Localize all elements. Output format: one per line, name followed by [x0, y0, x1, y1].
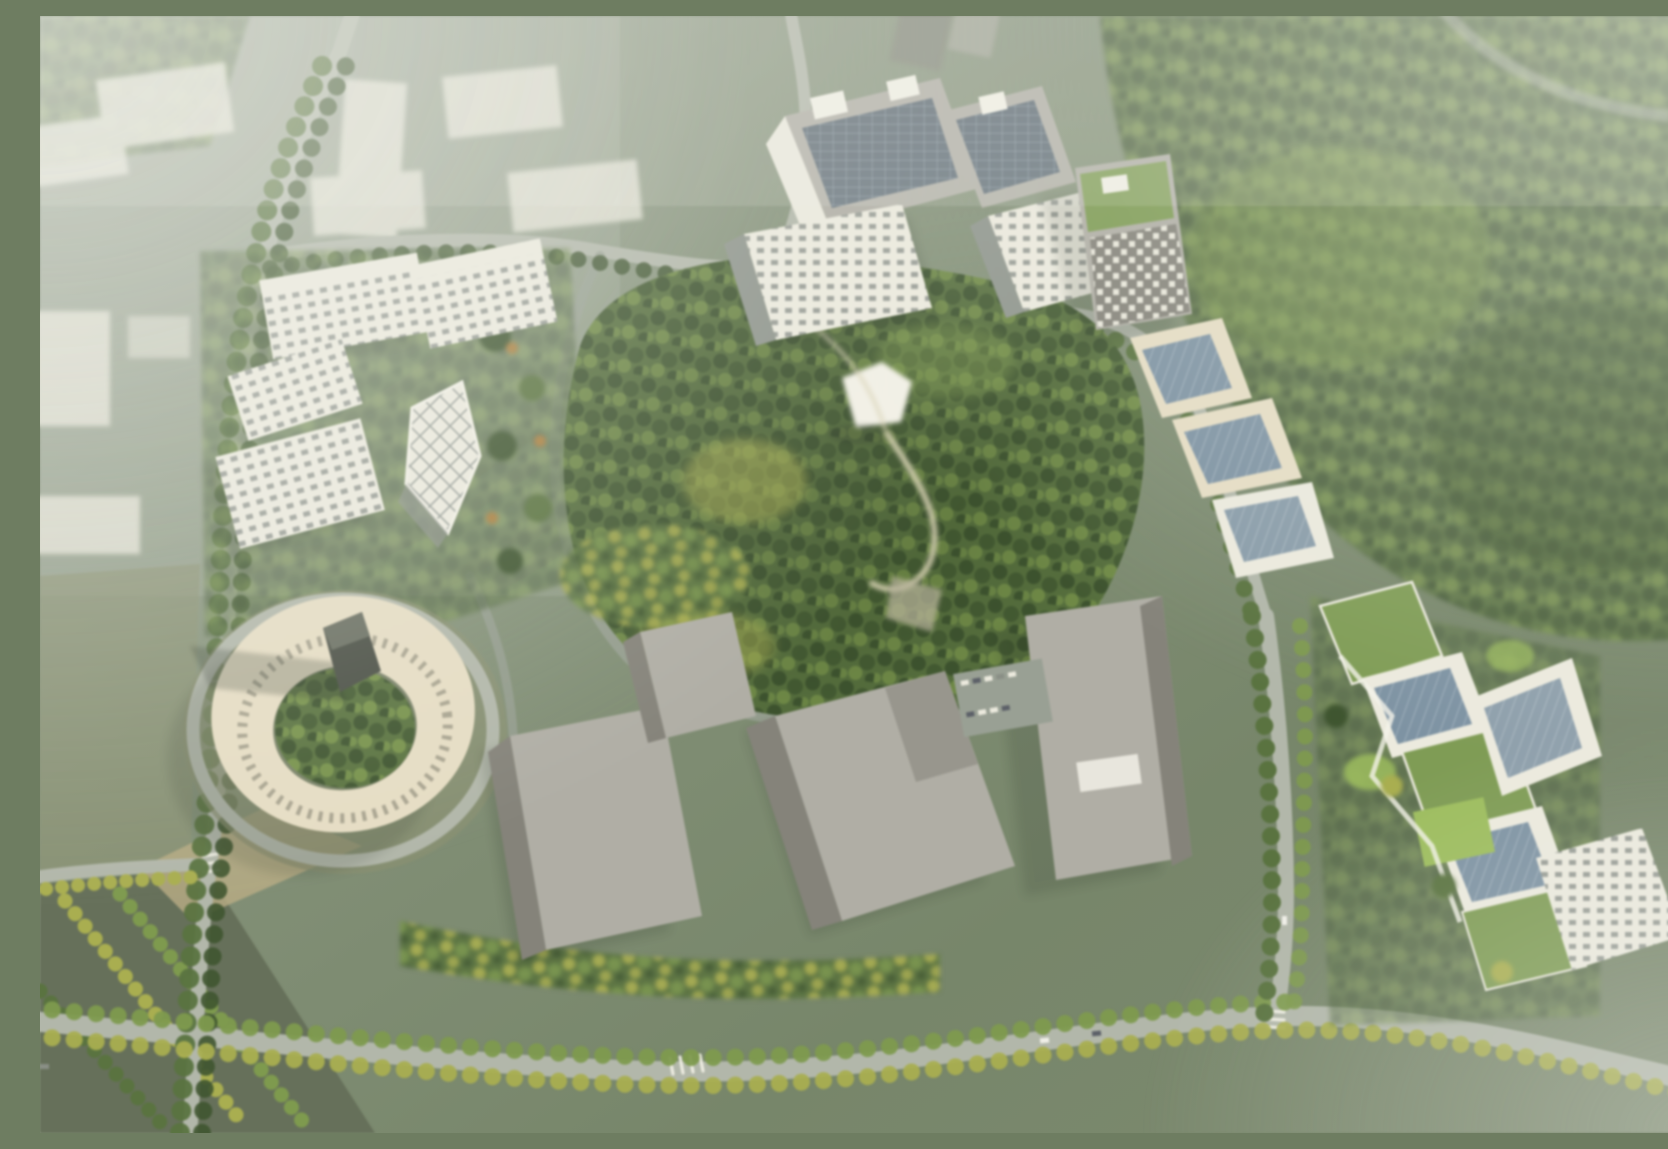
car — [40, 1064, 49, 1069]
haze-southeast — [1140, 716, 1668, 1133]
haze-top-band — [40, 16, 1668, 206]
car — [1040, 1037, 1049, 1043]
car — [1092, 1030, 1101, 1036]
aerial-view-canvas — [40, 16, 1668, 1133]
aerial-rendering-image — [40, 16, 1668, 1133]
